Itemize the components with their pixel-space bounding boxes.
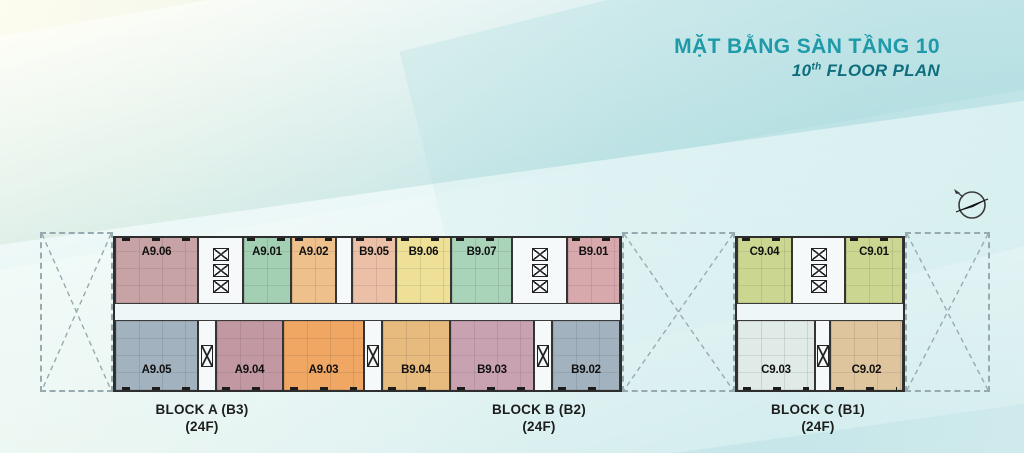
stairs-icon	[201, 345, 213, 367]
unit-label: A9.04	[235, 364, 265, 376]
elevator-icon	[213, 264, 229, 277]
stairs-icon	[367, 345, 379, 367]
block-c-caption: BLOCK C (B1) (24F)	[771, 401, 865, 435]
unit-a9-02: A9.02	[291, 238, 336, 303]
block-a-floors: (24F)	[156, 418, 249, 435]
unit-label: B9.05	[359, 246, 389, 258]
unit-label: B9.06	[409, 246, 439, 258]
unit-c9-01: C9.01	[845, 238, 903, 303]
unit-label: B9.01	[579, 246, 609, 258]
unit-label: C9.02	[852, 364, 882, 376]
block-ab-top-row: A9.06 A9.01 A9.02 B9.05 B9.06 B9.07 B9.0…	[115, 238, 620, 303]
stair-core	[364, 321, 382, 390]
unit-b9-06: B9.06	[396, 238, 451, 303]
stair-core	[198, 321, 216, 390]
unit-label: B9.04	[401, 364, 431, 376]
unit-label: C9.03	[761, 364, 791, 376]
future-phase-outline	[40, 232, 113, 392]
block-a-name: BLOCK A (B3)	[156, 401, 249, 418]
stairs-icon	[817, 345, 829, 367]
block-a-caption: BLOCK A (B3) (24F)	[156, 401, 249, 435]
elevator-icon	[532, 248, 548, 261]
stair-core	[815, 321, 830, 390]
block-c-name: BLOCK C (B1)	[771, 401, 865, 418]
unit-label: A9.06	[142, 246, 172, 258]
unit-a9-06: A9.06	[115, 238, 198, 303]
unit-b9-02: B9.02	[552, 321, 620, 390]
unit-c9-02: C9.02	[830, 321, 903, 390]
unit-label: B9.02	[571, 364, 601, 376]
block-c-bottom-row: C9.03 C9.02	[737, 321, 903, 390]
page-subtitle: 10th FLOOR PLAN	[792, 61, 940, 81]
elevator-icon	[811, 248, 827, 261]
block-b-name: BLOCK B (B2)	[492, 401, 586, 418]
unit-label: C9.01	[859, 246, 889, 258]
corridor	[115, 303, 620, 321]
future-phase-outline	[905, 232, 990, 392]
block-ab-bottom-row: A9.05 A9.04 A9.03 B9.04 B9.03 B9.02	[115, 321, 620, 390]
unit-b9-07: B9.07	[451, 238, 512, 303]
elevator-core	[198, 238, 243, 303]
unit-label: A9.02	[299, 246, 329, 258]
subtitle-number: 10	[792, 61, 812, 80]
future-phase-outline	[622, 232, 735, 392]
elevator-core	[792, 238, 845, 303]
block-c-strip: C9.04 C9.01 C9.03 C9.02	[735, 236, 905, 392]
unit-a9-01: A9.01	[243, 238, 291, 303]
unit-c9-03: C9.03	[737, 321, 815, 390]
corridor	[737, 303, 903, 321]
elevator-core	[512, 238, 567, 303]
elevator-icon	[811, 280, 827, 293]
unit-label: B9.07	[467, 246, 497, 258]
unit-a9-05: A9.05	[115, 321, 198, 390]
subtitle-ordinal: th	[811, 61, 821, 72]
elevator-icon	[532, 280, 548, 293]
stairs-icon	[537, 345, 549, 367]
unit-b9-03: B9.03	[450, 321, 534, 390]
elevator-icon	[213, 280, 229, 293]
unit-a9-03: A9.03	[283, 321, 364, 390]
unit-label: A9.05	[142, 364, 172, 376]
unit-c9-04: C9.04	[737, 238, 792, 303]
north-arrow-icon	[946, 180, 994, 226]
unit-label: A9.03	[309, 364, 339, 376]
stair-core	[534, 321, 552, 390]
subtitle-text: FLOOR PLAN	[821, 61, 940, 80]
unit-label: C9.04	[750, 246, 780, 258]
unit-b9-05: B9.05	[352, 238, 396, 303]
block-b-floors: (24F)	[492, 418, 586, 435]
floor-plan-page: MẶT BẰNG SÀN TẦNG 10 10th FLOOR PLAN A9.…	[0, 0, 1024, 453]
page-title: MẶT BẰNG SÀN TẦNG 10	[674, 35, 940, 59]
unit-a9-04: A9.04	[216, 321, 283, 390]
unit-b9-04: B9.04	[382, 321, 450, 390]
block-joint	[336, 238, 352, 303]
elevator-icon	[532, 264, 548, 277]
block-ab-strip: A9.06 A9.01 A9.02 B9.05 B9.06 B9.07 B9.0…	[113, 236, 622, 392]
unit-label: A9.01	[252, 246, 282, 258]
block-b-caption: BLOCK B (B2) (24F)	[492, 401, 586, 435]
elevator-icon	[811, 264, 827, 277]
unit-b9-01: B9.01	[567, 238, 620, 303]
unit-label: B9.03	[477, 364, 507, 376]
block-c-top-row: C9.04 C9.01	[737, 238, 903, 303]
block-c-floors: (24F)	[771, 418, 865, 435]
elevator-icon	[213, 248, 229, 261]
